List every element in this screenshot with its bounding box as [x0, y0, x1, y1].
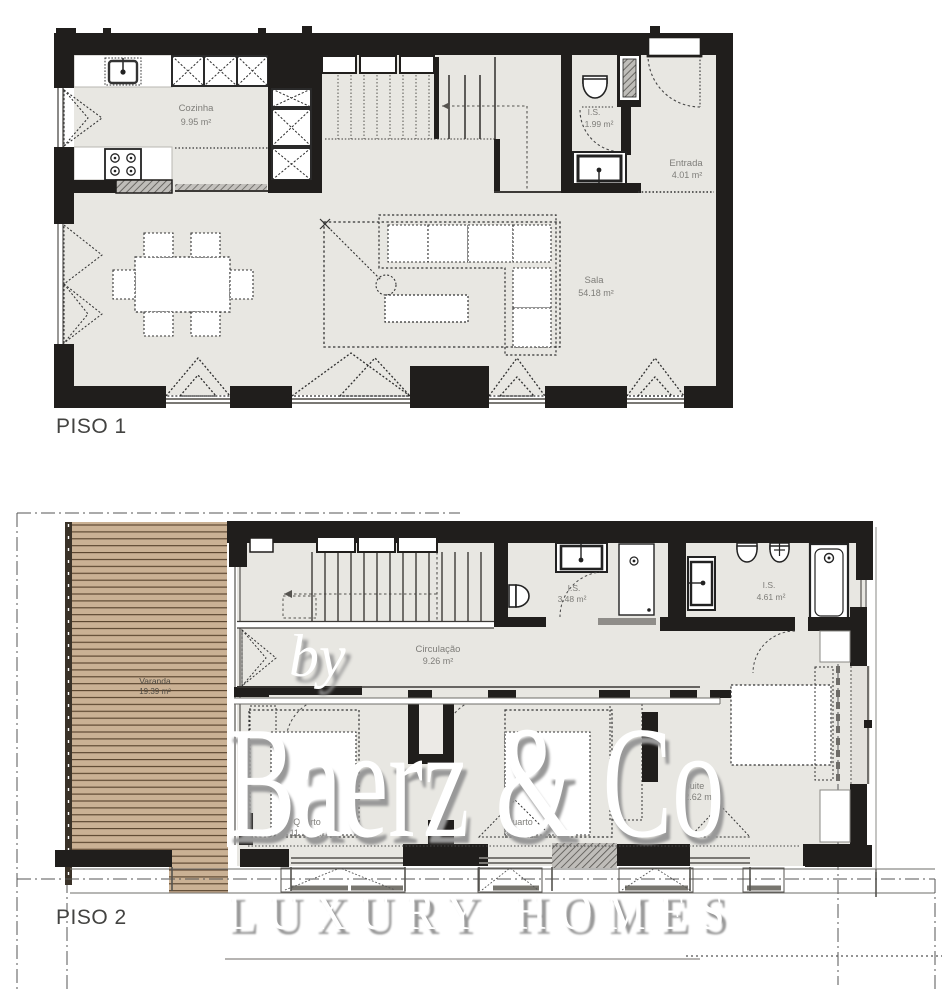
svg-text:4.01 m²: 4.01 m²: [672, 170, 703, 180]
svg-text:I.S.: I.S.: [763, 580, 776, 590]
svg-text:I.S.: I.S.: [588, 107, 601, 117]
svg-text:Circulação: Circulação: [416, 644, 461, 655]
svg-text:Varanda: Varanda: [139, 676, 171, 686]
svg-text:Sala: Sala: [584, 275, 604, 286]
svg-text:PISO 2: PISO 2: [56, 906, 127, 929]
svg-text:Entrada: Entrada: [669, 158, 703, 169]
svg-text:4.61 m²: 4.61 m²: [757, 592, 786, 602]
svg-text:54.18 m²: 54.18 m²: [578, 288, 614, 298]
svg-text:19.39 m²: 19.39 m²: [139, 687, 171, 696]
svg-text:1.99 m²: 1.99 m²: [585, 119, 614, 129]
svg-text:3.48 m²: 3.48 m²: [558, 594, 587, 604]
svg-text:PISO 1: PISO 1: [56, 415, 127, 438]
svg-text:9.95 m²: 9.95 m²: [181, 117, 212, 127]
svg-text:9.26 m²: 9.26 m²: [423, 656, 454, 666]
svg-text:Cozinha: Cozinha: [179, 103, 215, 114]
